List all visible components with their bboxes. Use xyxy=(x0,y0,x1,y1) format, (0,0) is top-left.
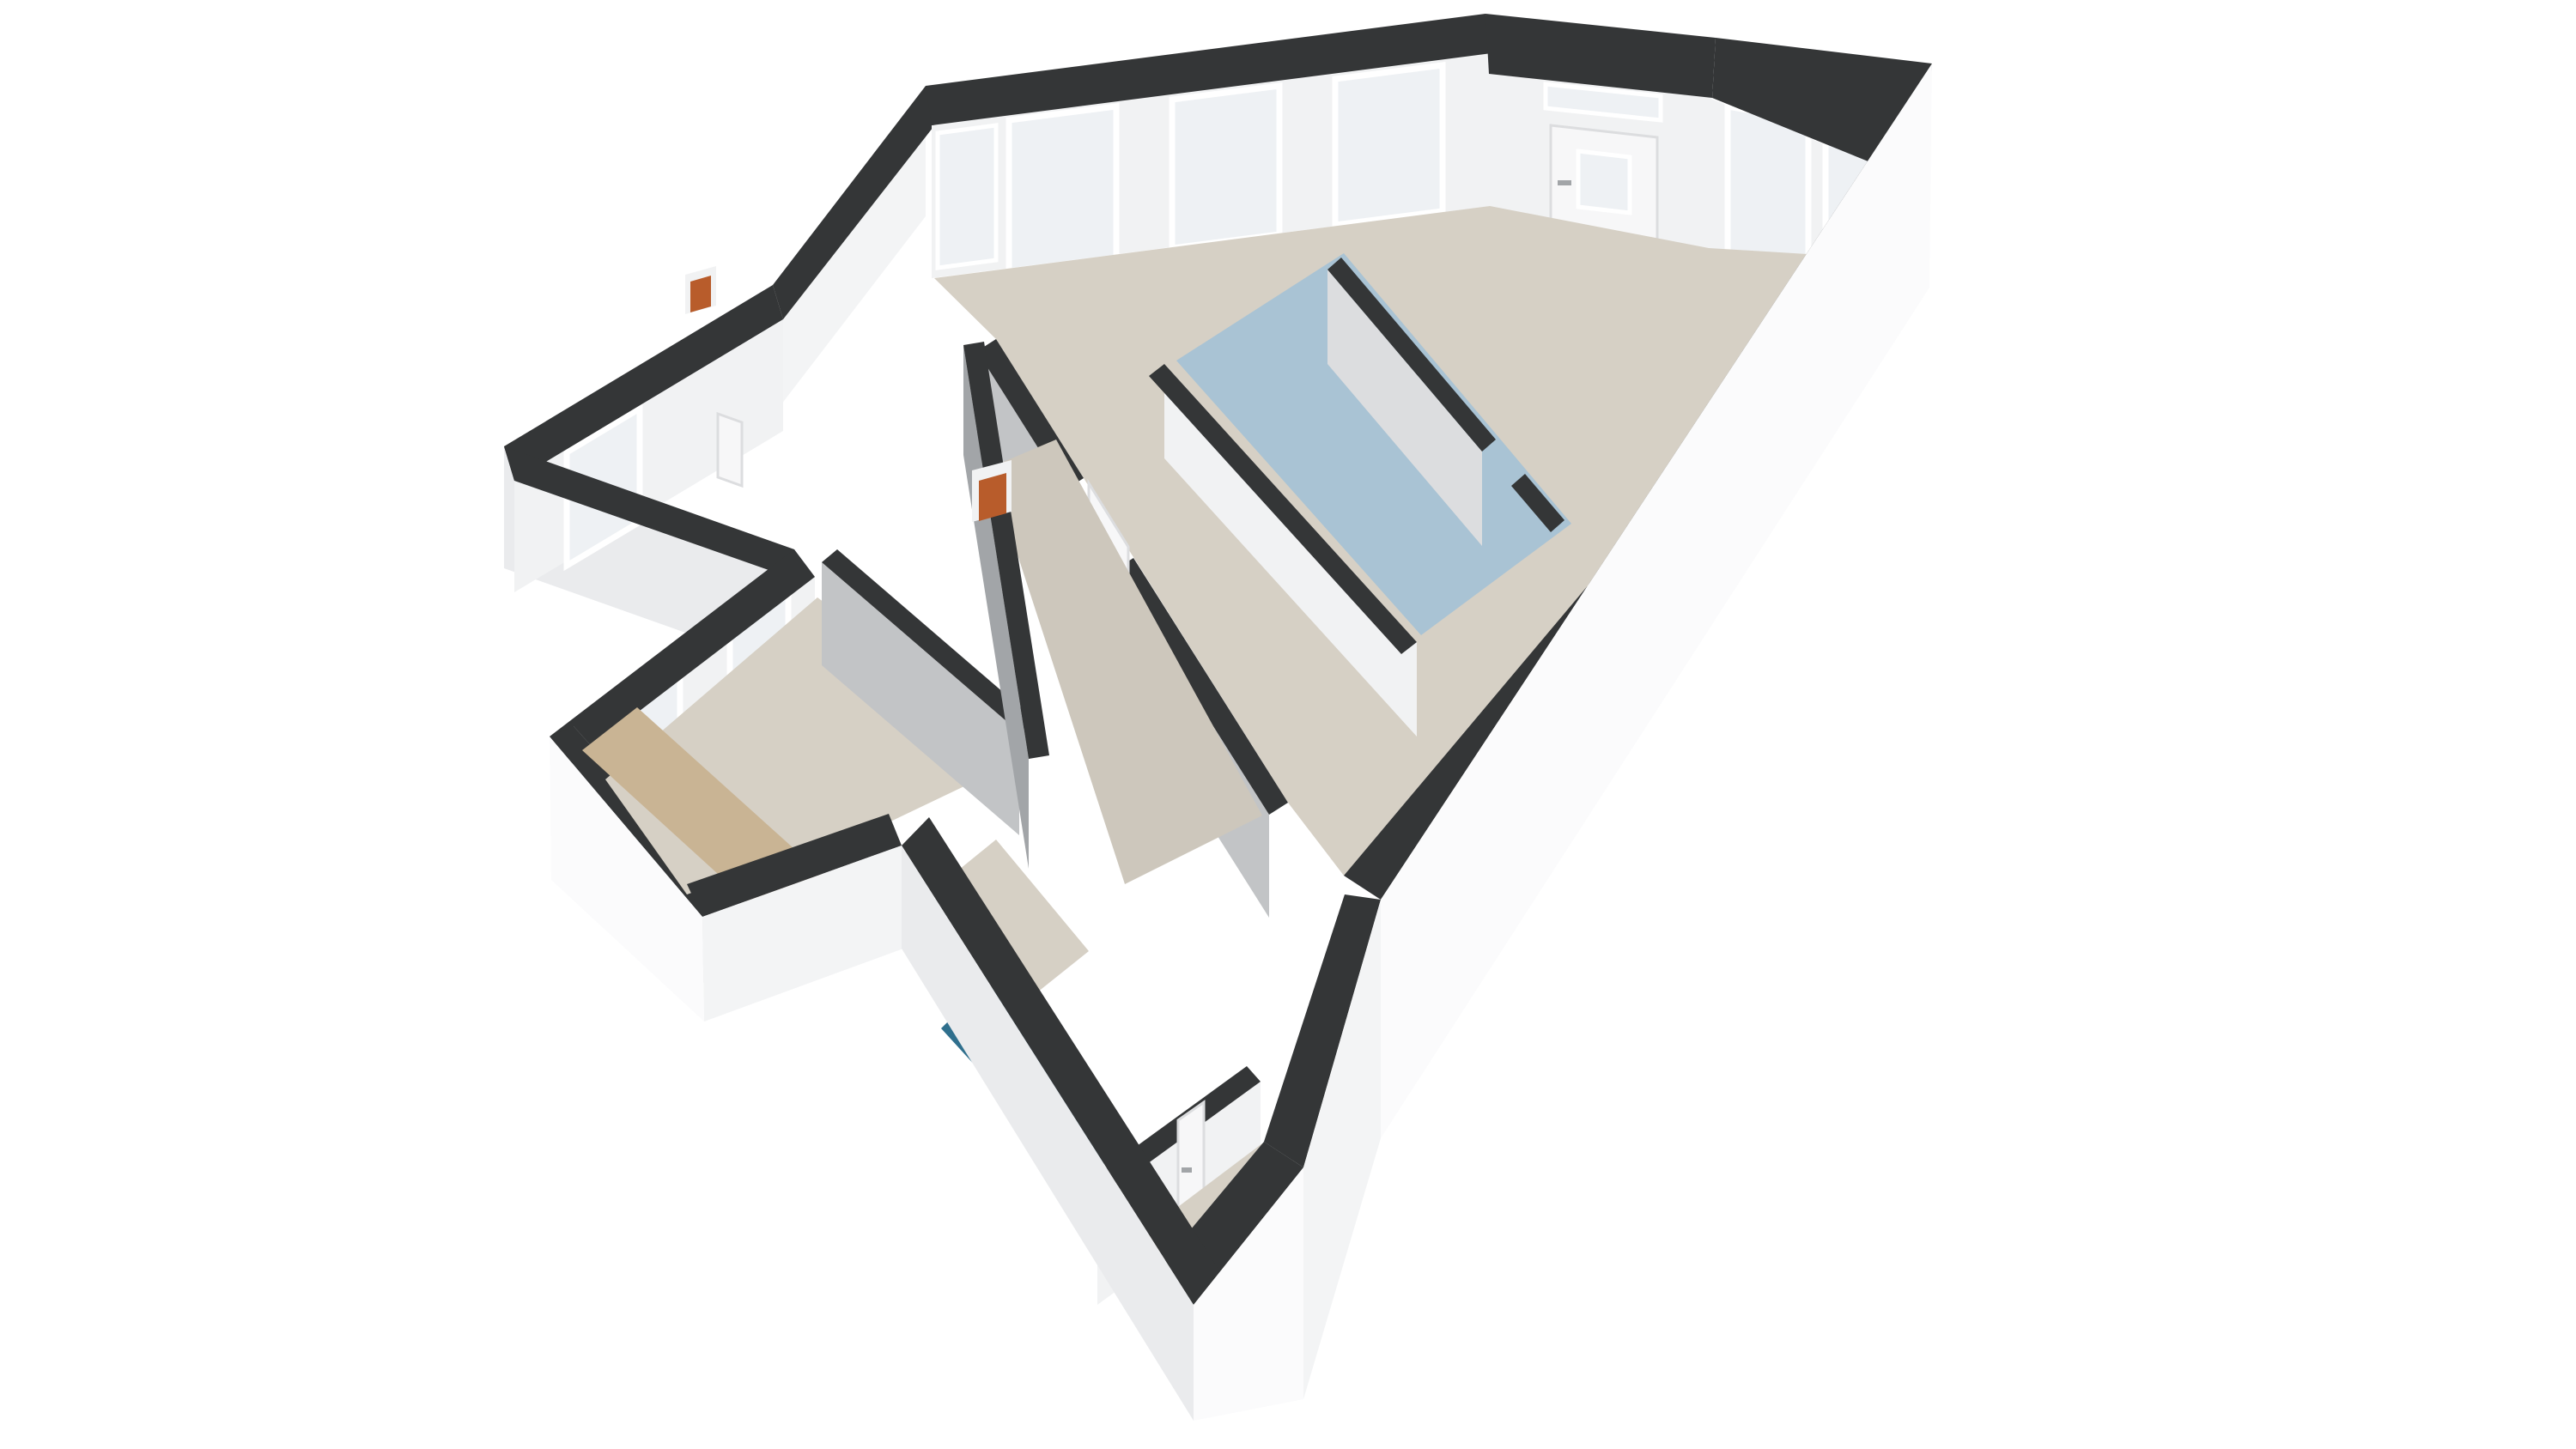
door-handle xyxy=(1182,1167,1192,1173)
boiler-front xyxy=(690,276,711,312)
wall-cap xyxy=(902,817,1219,1305)
window xyxy=(1172,86,1279,248)
boiler-unit xyxy=(972,460,1012,522)
door-handle xyxy=(1558,180,1571,185)
floorplan-3d-render xyxy=(0,0,2576,1449)
boiler-unit xyxy=(685,266,716,314)
floorplan-canvas xyxy=(0,0,2576,1449)
bottom-wing xyxy=(902,817,1381,1421)
facade-step-block xyxy=(504,86,957,671)
interior-door xyxy=(718,414,742,486)
boiler-front xyxy=(979,473,1006,521)
door-glass-pane xyxy=(1578,151,1630,213)
window xyxy=(1335,65,1443,225)
window xyxy=(938,125,996,268)
window xyxy=(1009,106,1116,271)
